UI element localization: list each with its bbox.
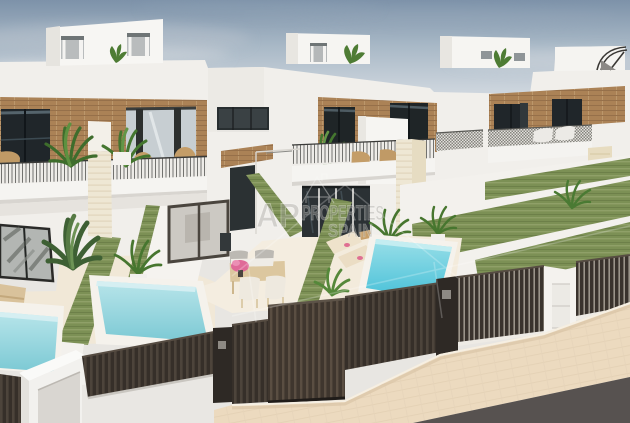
svg-text:AP: AP [256,197,300,235]
svg-text:SPAIN: SPAIN [328,221,373,241]
